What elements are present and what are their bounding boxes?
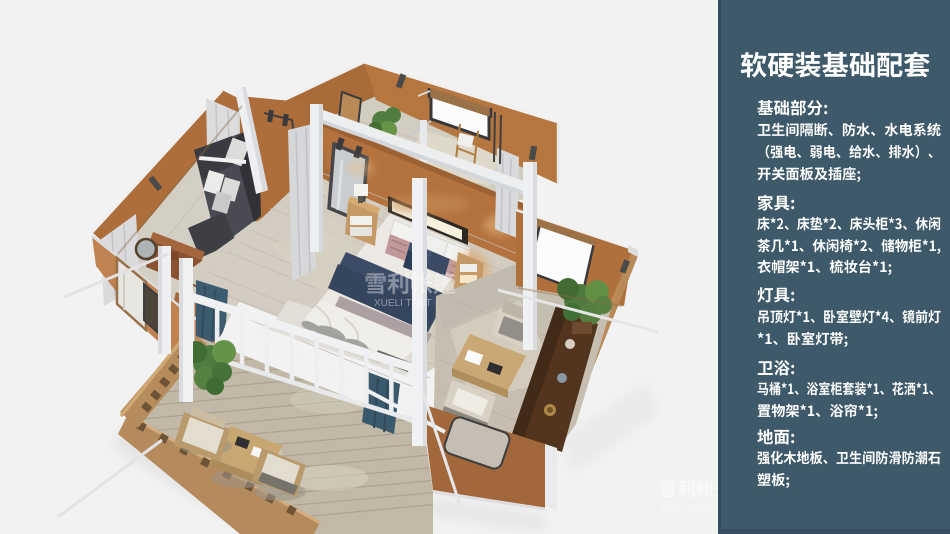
svg-text:XUELI TENT: XUELI TENT xyxy=(660,504,712,514)
svg-text:XUELI TENT: XUELI TENT xyxy=(374,298,432,309)
